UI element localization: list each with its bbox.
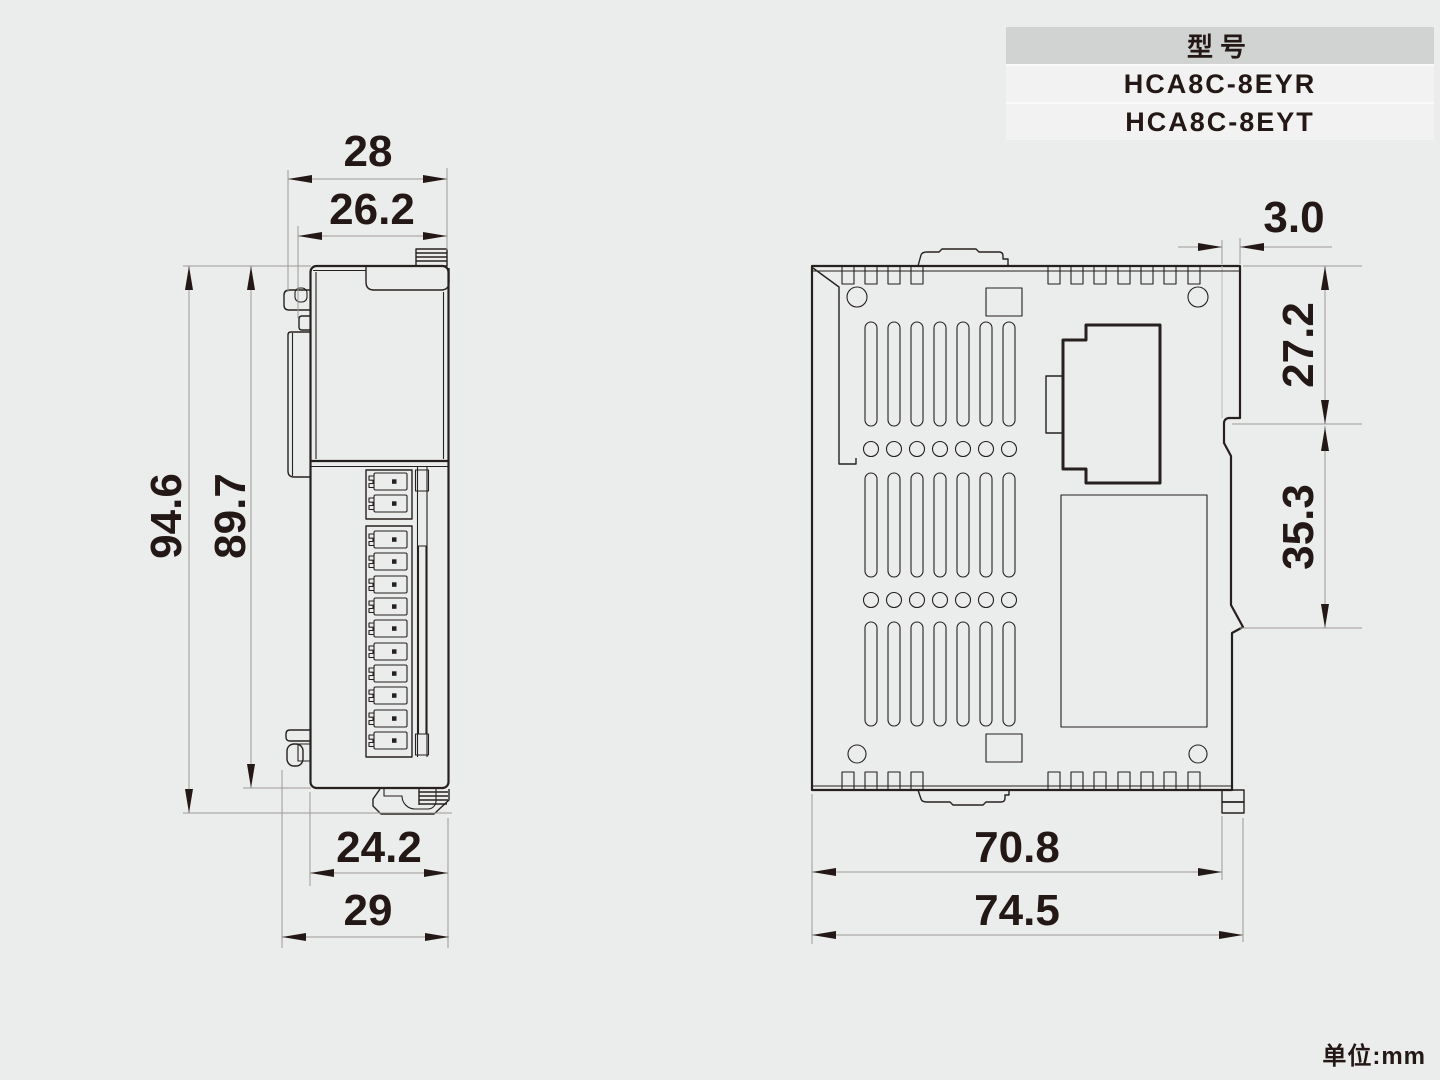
dim-side-width-body: 70.8 xyxy=(974,823,1060,872)
unit-note: 单位:mm xyxy=(1322,1036,1426,1071)
dim-front-height-body: 89.7 xyxy=(206,473,255,559)
model-table: 型号 HCA8C-8EYR HCA8C-8EYT xyxy=(1006,27,1434,140)
dim-front-bottom-width-body: 24.2 xyxy=(336,823,422,872)
front-bottom-latch xyxy=(373,789,449,814)
side-screw-holes xyxy=(847,287,1208,763)
model-row-1: HCA8C-8EYR xyxy=(1006,64,1434,102)
dim-front-top-width-outer: 28 xyxy=(344,127,393,176)
technical-drawing: 28 26.2 94.6 89.7 24.2 29 xyxy=(0,0,1440,1080)
front-terminal-blocks xyxy=(366,467,429,757)
front-din-clips xyxy=(284,288,310,766)
front-view-dimensions: 28 26.2 94.6 89.7 24.2 29 xyxy=(142,127,452,948)
dim-side-rail-step: 3.0 xyxy=(1263,193,1324,242)
side-edge-notches xyxy=(842,267,1200,789)
model-row-2: HCA8C-8EYT xyxy=(1006,102,1434,140)
dim-side-width-total: 74.5 xyxy=(974,886,1060,935)
dim-side-depth-lower: 35.3 xyxy=(1274,484,1323,570)
side-expansion-connector xyxy=(1046,325,1160,483)
dimension-drawing-page: 28 26.2 94.6 89.7 24.2 29 xyxy=(0,0,1440,1080)
dim-front-bottom-width-outer: 29 xyxy=(344,886,393,935)
front-view: 28 26.2 94.6 89.7 24.2 29 xyxy=(142,127,452,948)
side-view-dimensions: 3.0 27.2 35.3 70.8 74.5 xyxy=(812,193,1362,944)
side-label-plate xyxy=(1061,495,1207,727)
dim-side-depth-upper: 27.2 xyxy=(1274,302,1323,388)
side-vent-slots xyxy=(864,322,1017,726)
dim-front-height-total: 94.6 xyxy=(142,473,191,559)
side-view: 3.0 27.2 35.3 70.8 74.5 xyxy=(812,193,1362,944)
front-top-latch-knob xyxy=(416,249,447,266)
dim-front-top-width-inner: 26.2 xyxy=(329,185,415,234)
model-table-header: 型号 xyxy=(1006,27,1434,64)
